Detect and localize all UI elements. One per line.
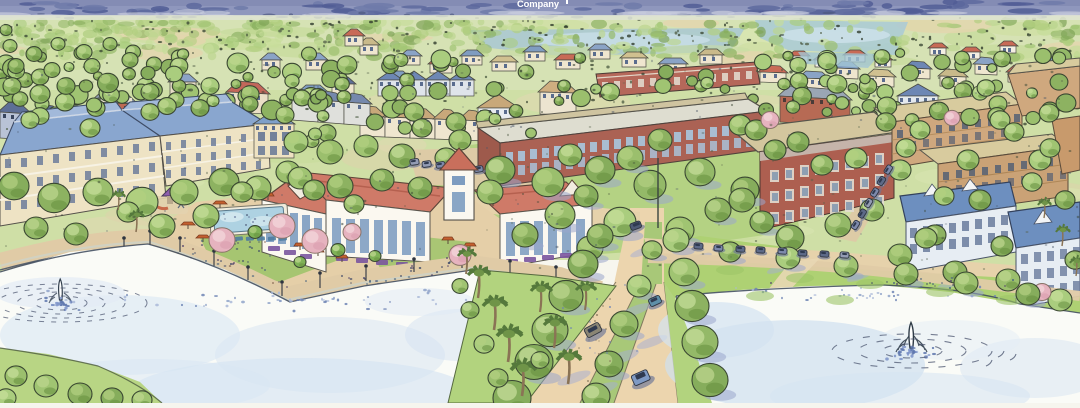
svg-text:Company: Company bbox=[517, 0, 560, 9]
